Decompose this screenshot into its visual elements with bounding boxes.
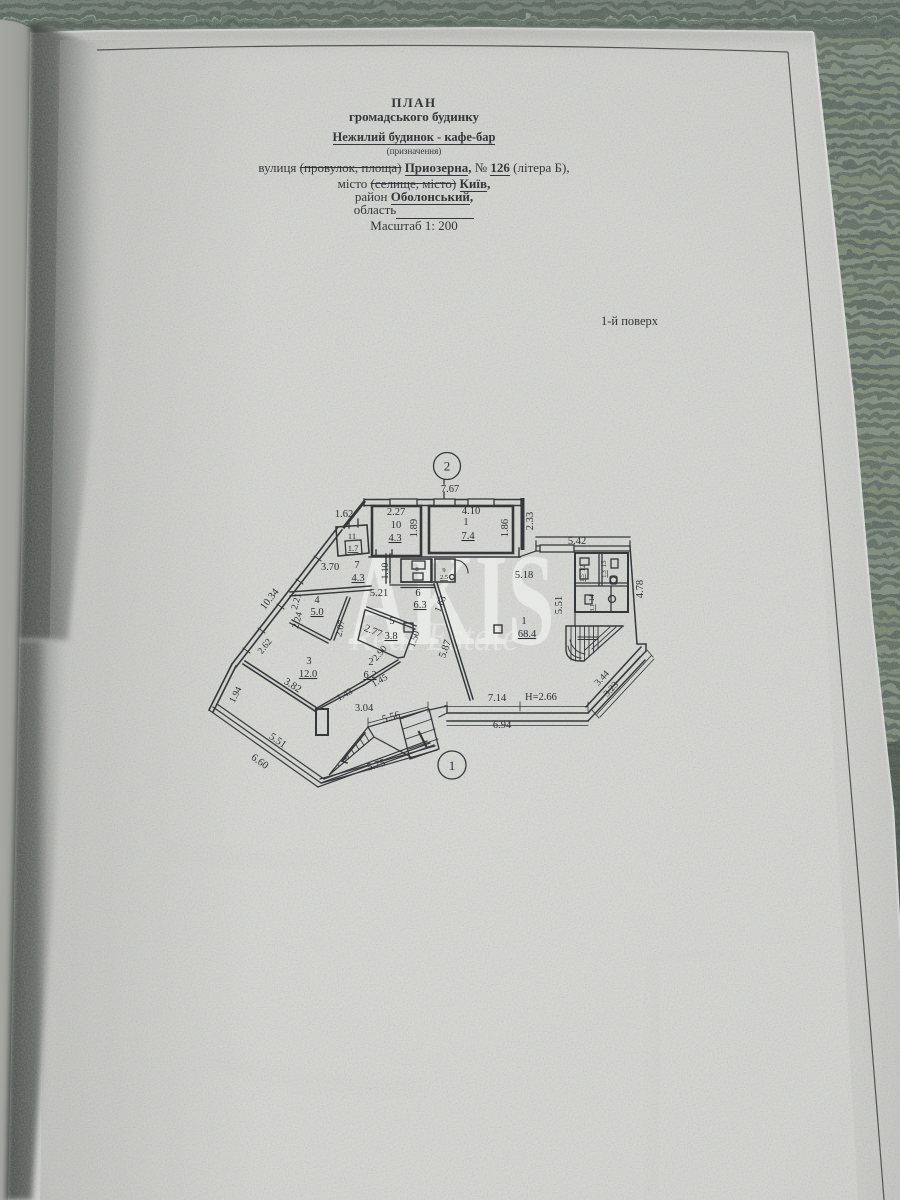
svg-text:1.5: 1.5: [580, 574, 586, 582]
svg-text:1.7: 1.7: [348, 543, 359, 553]
svg-text:1.86: 1.86: [500, 519, 511, 537]
svg-text:4.10: 4.10: [462, 506, 480, 517]
svg-text:7.14: 7.14: [488, 693, 507, 704]
svg-text:2: 2: [368, 657, 373, 668]
svg-text:14: 14: [588, 594, 596, 602]
svg-text:Н=2.66: Н=2.66: [525, 692, 557, 703]
svg-text:12: 12: [579, 564, 587, 572]
svg-text:2.27: 2.27: [387, 507, 405, 518]
svg-text:13: 13: [600, 560, 608, 568]
svg-text:10: 10: [391, 520, 402, 531]
svg-text:5.42: 5.42: [568, 536, 586, 547]
svg-text:8: 8: [415, 566, 418, 573]
svg-text:1.3: 1.3: [602, 570, 608, 578]
svg-text:68.4: 68.4: [518, 629, 537, 640]
svg-text:1: 1: [463, 517, 468, 528]
svg-text:2.07: 2.07: [334, 619, 347, 638]
svg-text:5: 5: [389, 616, 394, 627]
svg-text:1.63: 1.63: [433, 594, 449, 613]
svg-text:1: 1: [521, 616, 526, 627]
svg-text:3.8: 3.8: [384, 631, 397, 642]
svg-text:2.5: 2.5: [440, 574, 448, 581]
svg-text:5.0: 5.0: [310, 607, 323, 618]
svg-text:4.3: 4.3: [388, 533, 401, 544]
svg-text:4.78: 4.78: [635, 580, 646, 598]
svg-text:7.4: 7.4: [461, 531, 475, 542]
svg-text:3.1: 3.1: [590, 604, 596, 612]
svg-text:5.56: 5.56: [381, 710, 402, 726]
svg-text:5.87: 5.87: [437, 639, 454, 660]
svg-text:12.0: 12.0: [299, 669, 317, 680]
svg-text:1: 1: [449, 758, 456, 773]
svg-text:3.04: 3.04: [355, 703, 374, 714]
svg-text:7.67: 7.67: [441, 484, 459, 495]
svg-text:5.51: 5.51: [554, 596, 565, 614]
svg-text:1.89: 1.89: [409, 519, 420, 537]
svg-text:4: 4: [314, 595, 320, 606]
svg-text:2.77: 2.77: [362, 623, 383, 640]
svg-text:3.70: 3.70: [321, 562, 339, 573]
svg-text:2.33: 2.33: [525, 512, 536, 530]
svg-text:10.34: 10.34: [258, 586, 282, 612]
svg-text:1.94: 1.94: [228, 685, 245, 705]
svg-text:5.18: 5.18: [515, 570, 533, 581]
svg-text:2.24: 2.24: [291, 611, 305, 630]
svg-text:3: 3: [306, 656, 311, 667]
svg-text:5.21: 5.21: [370, 588, 388, 599]
svg-text:2: 2: [444, 459, 451, 474]
svg-text:6.94: 6.94: [493, 720, 512, 731]
svg-text:9: 9: [442, 567, 445, 574]
svg-text:1.10: 1.10: [381, 562, 391, 579]
svg-text:6.60: 6.60: [249, 752, 270, 772]
svg-text:1.62: 1.62: [335, 509, 353, 520]
svg-text:5.75: 5.75: [366, 758, 387, 774]
svg-text:1.43: 1.43: [335, 687, 355, 704]
svg-text:4.3: 4.3: [351, 573, 364, 584]
svg-text:11: 11: [348, 531, 356, 541]
svg-text:2.62: 2.62: [256, 637, 274, 656]
svg-text:7: 7: [354, 560, 359, 571]
svg-text:6.3: 6.3: [413, 600, 426, 611]
svg-text:6: 6: [415, 588, 420, 599]
